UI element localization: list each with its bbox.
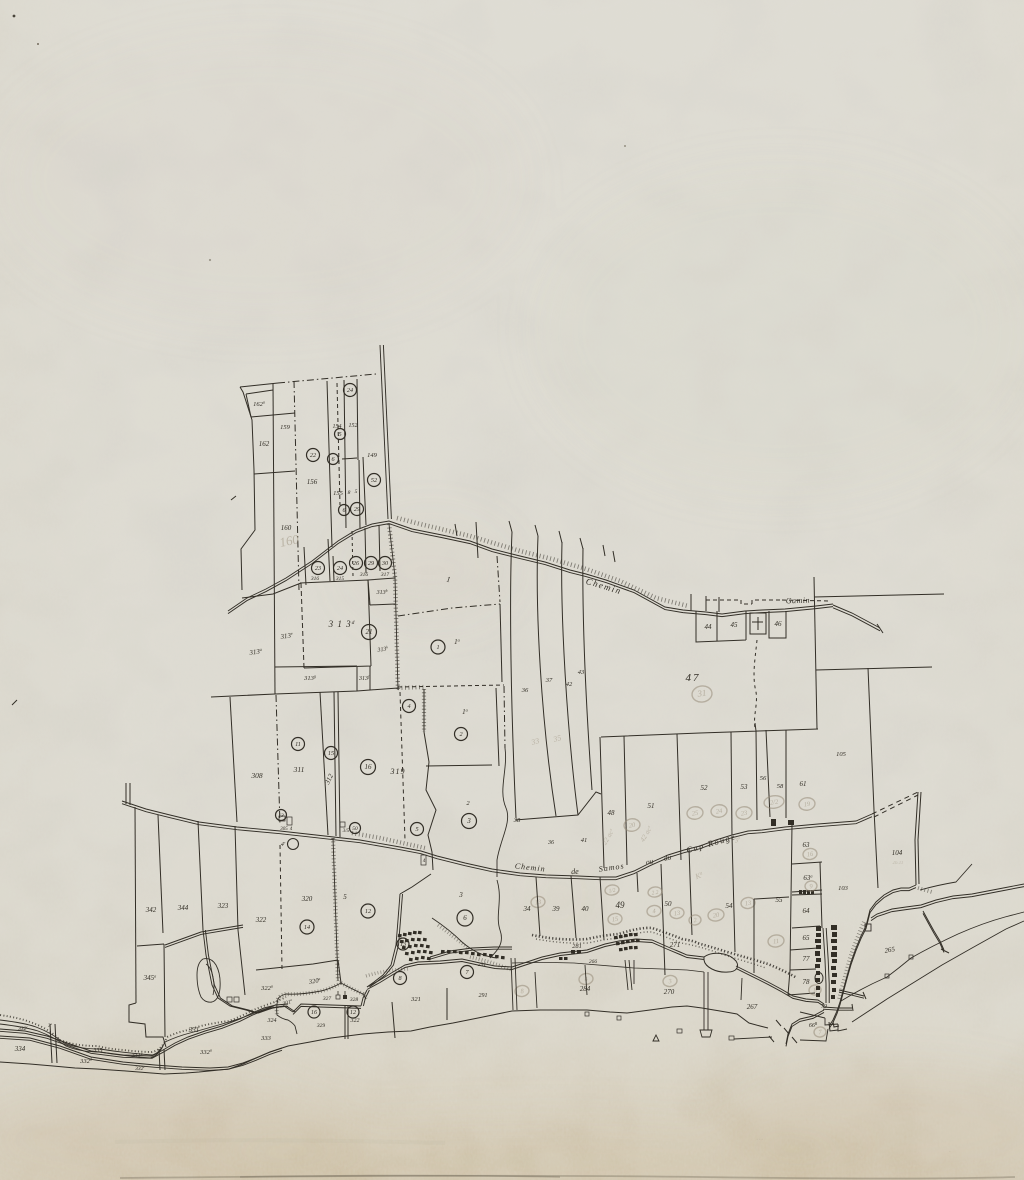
svg-text:266: 266 bbox=[589, 959, 598, 965]
svg-text:36: 36 bbox=[521, 687, 529, 694]
svg-text:267: 267 bbox=[747, 1003, 758, 1011]
svg-text:29: 29 bbox=[354, 506, 360, 513]
svg-text:12: 12 bbox=[365, 908, 371, 915]
svg-text:308: 308 bbox=[250, 771, 263, 780]
svg-text:78: 78 bbox=[803, 978, 811, 986]
svg-text:63: 63 bbox=[803, 841, 811, 849]
svg-text:45: 45 bbox=[731, 621, 739, 629]
svg-text:344: 344 bbox=[177, 904, 189, 912]
svg-text:64: 64 bbox=[803, 907, 811, 915]
svg-text:159: 159 bbox=[280, 424, 291, 431]
svg-text:11: 11 bbox=[295, 741, 301, 748]
svg-text:30: 30 bbox=[381, 560, 389, 567]
svg-text:155: 155 bbox=[333, 490, 344, 497]
svg-text:5: 5 bbox=[343, 893, 347, 901]
svg-text:42: 42 bbox=[566, 681, 573, 688]
svg-text:334: 334 bbox=[14, 1045, 26, 1053]
svg-text:105: 105 bbox=[836, 751, 847, 758]
svg-text:305: 305 bbox=[280, 827, 288, 832]
svg-text:23: 23 bbox=[315, 565, 321, 572]
svg-text:38: 38 bbox=[513, 817, 521, 824]
svg-text:270: 270 bbox=[664, 988, 675, 996]
svg-text:21: 21 bbox=[366, 628, 373, 636]
svg-text:43: 43 bbox=[578, 669, 585, 676]
svg-text:3: 3 bbox=[458, 891, 463, 899]
svg-text:49: 49 bbox=[616, 900, 626, 910]
svg-text:291: 291 bbox=[479, 993, 488, 999]
svg-text:50: 50 bbox=[352, 826, 358, 832]
svg-text:26: 26 bbox=[353, 560, 360, 567]
svg-text:329: 329 bbox=[316, 1023, 326, 1029]
svg-text:11: 11 bbox=[773, 938, 780, 946]
svg-text:3/5: 3/5 bbox=[343, 829, 350, 834]
svg-text:52: 52 bbox=[371, 477, 377, 484]
svg-text:317: 317 bbox=[380, 572, 390, 578]
svg-text:319: 319 bbox=[390, 767, 406, 776]
svg-text:156: 156 bbox=[307, 478, 318, 486]
svg-text:65: 65 bbox=[803, 934, 811, 942]
svg-text:...: ... bbox=[756, 1132, 764, 1143]
svg-text:53: 53 bbox=[741, 783, 749, 791]
svg-text:de: de bbox=[571, 867, 579, 876]
svg-text:323: 323 bbox=[217, 902, 229, 910]
svg-text:54: 54 bbox=[726, 902, 734, 910]
svg-text:24: 24 bbox=[337, 565, 343, 572]
svg-text:154: 154 bbox=[333, 423, 342, 430]
svg-text:15: 15 bbox=[328, 750, 334, 757]
svg-text:322: 322 bbox=[255, 916, 267, 924]
svg-text:47: 47 bbox=[686, 672, 701, 684]
svg-text:149: 149 bbox=[367, 452, 378, 459]
svg-text:58: 58 bbox=[777, 783, 784, 790]
svg-text:.: . bbox=[949, 1144, 951, 1154]
svg-text:8: 8 bbox=[348, 490, 351, 496]
svg-text:320: 320 bbox=[301, 895, 313, 903]
svg-text:271: 271 bbox=[670, 941, 681, 949]
svg-text:6: 6 bbox=[463, 914, 467, 922]
svg-text:162: 162 bbox=[259, 440, 270, 448]
svg-text:48: 48 bbox=[608, 809, 616, 817]
svg-text:31: 31 bbox=[696, 688, 707, 699]
svg-text:36: 36 bbox=[547, 840, 554, 846]
svg-text:284: 284 bbox=[580, 985, 591, 993]
svg-text:61: 61 bbox=[800, 780, 807, 788]
svg-text:13: 13 bbox=[278, 813, 284, 819]
svg-text:52: 52 bbox=[701, 784, 709, 792]
svg-text:327: 327 bbox=[322, 996, 332, 1002]
svg-text:331: 331 bbox=[188, 1026, 200, 1034]
svg-text:328: 328 bbox=[349, 997, 359, 1003]
svg-text:333: 333 bbox=[260, 1035, 272, 1042]
svg-text:2: 2 bbox=[459, 731, 462, 738]
svg-text:37: 37 bbox=[545, 677, 553, 684]
svg-text:322: 322 bbox=[350, 1018, 360, 1024]
svg-text:321: 321 bbox=[410, 996, 421, 1003]
svg-text:44: 44 bbox=[705, 623, 713, 631]
svg-text:56: 56 bbox=[760, 775, 767, 782]
svg-text:34: 34 bbox=[523, 905, 532, 913]
svg-text:51: 51 bbox=[648, 802, 655, 810]
svg-text:103: 103 bbox=[838, 885, 849, 892]
svg-text:24: 24 bbox=[347, 387, 353, 394]
svg-text:104: 104 bbox=[892, 849, 903, 857]
svg-text:324: 324 bbox=[267, 1017, 277, 1024]
svg-text:3: 3 bbox=[466, 817, 471, 825]
svg-text:29: 29 bbox=[368, 560, 374, 567]
svg-text:1: 1 bbox=[436, 644, 439, 651]
svg-text:77: 77 bbox=[803, 955, 811, 963]
svg-text:1/2: 1/2 bbox=[608, 888, 616, 895]
svg-text:316: 316 bbox=[310, 576, 320, 582]
svg-text:316: 316 bbox=[359, 572, 369, 578]
svg-text:46: 46 bbox=[775, 620, 783, 628]
svg-text:40: 40 bbox=[582, 905, 590, 913]
svg-text:335: 335 bbox=[93, 1048, 103, 1054]
svg-text:5: 5 bbox=[355, 489, 358, 495]
svg-text:2.2: 2.2 bbox=[651, 890, 659, 897]
svg-text:5: 5 bbox=[338, 431, 341, 438]
svg-text:50: 50 bbox=[665, 900, 673, 908]
svg-text:291: 291 bbox=[478, 962, 487, 968]
svg-text:16: 16 bbox=[311, 1009, 318, 1016]
svg-text:39: 39 bbox=[552, 905, 561, 913]
svg-text:4: 4 bbox=[407, 703, 410, 710]
svg-text:14: 14 bbox=[304, 924, 310, 931]
svg-text:12: 12 bbox=[350, 1009, 356, 1016]
svg-text:152: 152 bbox=[349, 423, 358, 429]
svg-text:3 1 3d: 3 1 3d bbox=[328, 619, 356, 629]
svg-text:41: 41 bbox=[581, 837, 588, 844]
svg-text:22: 22 bbox=[310, 452, 316, 459]
svg-text:311: 311 bbox=[293, 765, 305, 774]
svg-text:5: 5 bbox=[415, 826, 418, 833]
svg-text:281: 281 bbox=[572, 943, 582, 950]
svg-text:16: 16 bbox=[365, 763, 373, 771]
svg-text:342: 342 bbox=[145, 906, 157, 914]
svg-text:160: 160 bbox=[281, 524, 292, 532]
svg-text:4′: 4′ bbox=[281, 841, 286, 848]
svg-text:26.11: 26.11 bbox=[893, 861, 904, 866]
